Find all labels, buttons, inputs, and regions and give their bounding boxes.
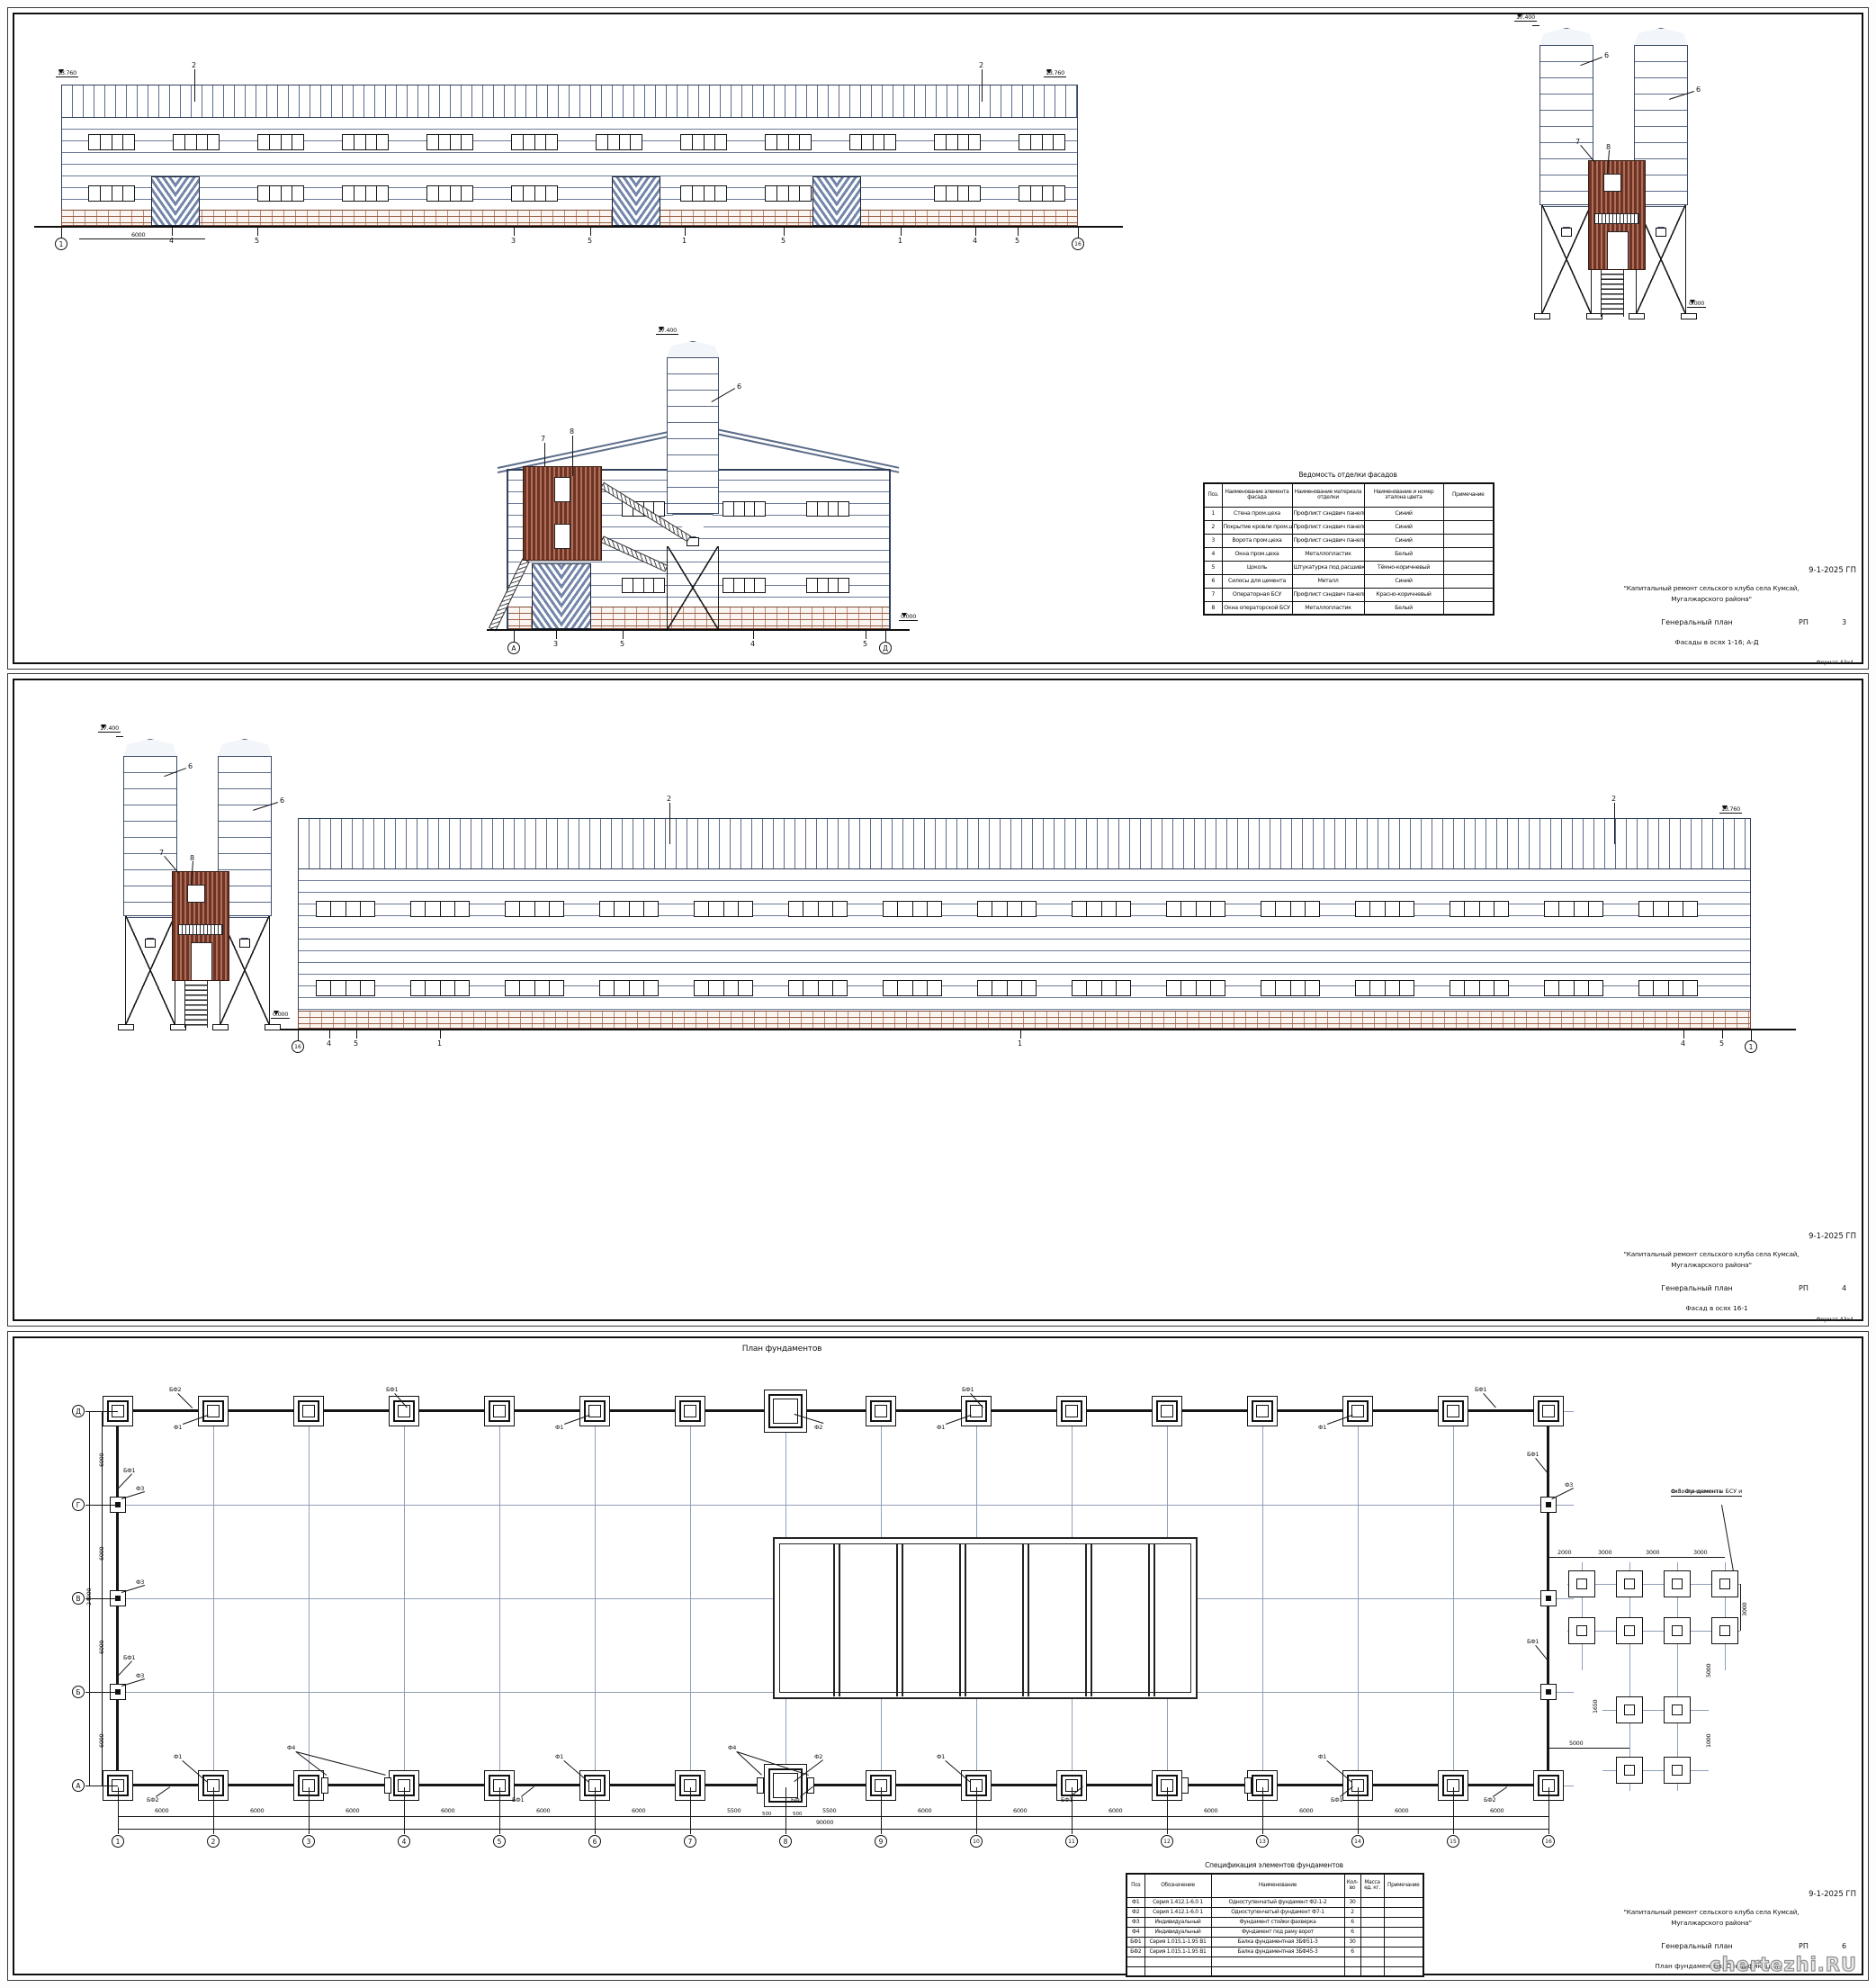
window-pane bbox=[1306, 902, 1319, 916]
table-cell: 6 bbox=[1344, 1927, 1360, 1937]
callout-label: 3000 bbox=[1646, 1549, 1659, 1556]
callout-label: 5 bbox=[863, 640, 867, 648]
window-pane bbox=[623, 579, 633, 592]
cabin-window bbox=[554, 477, 570, 502]
window-pane bbox=[705, 186, 716, 201]
silo-legs-brace bbox=[667, 546, 719, 629]
axis-circle: 7 bbox=[684, 1835, 696, 1848]
window-pane bbox=[101, 186, 112, 201]
dim-label: 6000 bbox=[98, 1726, 105, 1748]
sheet-caption: Фасад в осях 16-1 bbox=[1620, 1304, 1813, 1312]
window-group bbox=[316, 980, 375, 996]
table-cell bbox=[1443, 520, 1494, 534]
line bbox=[440, 1030, 441, 1039]
window-pane bbox=[803, 902, 818, 916]
window-group bbox=[1544, 980, 1603, 996]
window-pane bbox=[884, 981, 898, 995]
window-group bbox=[765, 185, 812, 202]
window-pane bbox=[317, 981, 331, 995]
window-pane bbox=[524, 186, 535, 201]
table-row: Ф3ИндивидуальныйФундамент стойки фахверк… bbox=[1126, 1917, 1423, 1927]
table-cell: 2 bbox=[1344, 1907, 1360, 1917]
window-pane bbox=[789, 186, 801, 201]
leader-line bbox=[1483, 1393, 1496, 1408]
callout-label: Ф1 bbox=[555, 1424, 563, 1431]
window-pane bbox=[1589, 902, 1602, 916]
line bbox=[889, 469, 891, 629]
window-group bbox=[1072, 980, 1131, 996]
roof-parapet bbox=[298, 818, 1751, 869]
table-cell: Профлист сэндвич панели bbox=[1292, 534, 1364, 547]
foundation-bsu-inner bbox=[1624, 1625, 1635, 1636]
window-group bbox=[1450, 980, 1509, 996]
window-pane bbox=[331, 981, 346, 995]
window-pane bbox=[462, 135, 472, 149]
foundation-f1-inner bbox=[493, 1405, 506, 1417]
window-pane bbox=[346, 981, 361, 995]
callout-label: 6000 bbox=[1109, 1807, 1122, 1814]
line bbox=[213, 1787, 214, 1834]
foundation-f1-inner bbox=[1161, 1405, 1173, 1417]
window-pane bbox=[1639, 981, 1654, 995]
gate-leaf-right bbox=[636, 177, 660, 225]
table-cell bbox=[1126, 1957, 1144, 1966]
callout-label: Ф1 bbox=[174, 1753, 182, 1760]
line bbox=[271, 1029, 1796, 1030]
callout-label: 6000 bbox=[131, 231, 145, 238]
window-group bbox=[596, 134, 642, 150]
doc-code: 9-1-2025 ГП bbox=[1809, 566, 1856, 575]
window-pane bbox=[898, 902, 912, 916]
window-pane bbox=[833, 981, 847, 995]
doc-title: Генеральный план bbox=[1633, 1284, 1761, 1292]
leader-line bbox=[121, 1491, 145, 1499]
window-pane bbox=[1197, 981, 1211, 995]
callout-label: 6000 bbox=[632, 1807, 645, 1814]
line bbox=[1085, 1543, 1087, 1696]
silos-group: 17.40066780.000 bbox=[1514, 12, 1717, 328]
window-pane bbox=[1480, 902, 1495, 916]
line bbox=[623, 631, 624, 639]
window-pane bbox=[377, 186, 388, 201]
foundation-f1 bbox=[1533, 1396, 1564, 1426]
window-pane bbox=[197, 135, 209, 149]
window-group bbox=[257, 185, 304, 202]
table-cell: Синий bbox=[1364, 534, 1443, 547]
line bbox=[118, 1409, 1550, 1412]
table-cell bbox=[1144, 1966, 1211, 1976]
table-cell: Одноступенчатый фундамент Ф2-1-2 bbox=[1211, 1897, 1344, 1907]
leader-line bbox=[118, 1660, 132, 1676]
line bbox=[1358, 1787, 1359, 1834]
window-pane bbox=[512, 135, 524, 149]
table-cell: 6 bbox=[1204, 574, 1222, 588]
table-cell bbox=[1360, 1966, 1384, 1976]
window-pane bbox=[343, 135, 355, 149]
window-pane bbox=[1495, 902, 1508, 916]
window-group bbox=[1019, 134, 1065, 150]
window-group bbox=[977, 980, 1037, 996]
table-cell: Металлопластик bbox=[1292, 601, 1364, 615]
window-pane bbox=[1087, 902, 1101, 916]
window-pane bbox=[361, 981, 374, 995]
window-pane bbox=[777, 135, 789, 149]
callout-label: БФ1 bbox=[962, 1386, 974, 1393]
window-pane bbox=[355, 186, 366, 201]
window-pane bbox=[89, 135, 101, 149]
window-pane bbox=[520, 981, 534, 995]
foundation-f4 bbox=[757, 1777, 764, 1794]
callout-label: 500 bbox=[762, 1812, 772, 1817]
window-pane bbox=[884, 902, 898, 916]
callout-label: Ф4 bbox=[287, 1744, 295, 1751]
window-group bbox=[680, 185, 727, 202]
line bbox=[1018, 228, 1019, 236]
window-pane bbox=[292, 135, 303, 149]
callout-label: Ф1 bbox=[937, 1753, 945, 1760]
window-pane bbox=[928, 981, 941, 995]
line bbox=[881, 1787, 882, 1834]
table-header-cell: Примечание bbox=[1384, 1874, 1423, 1897]
window-pane bbox=[270, 186, 282, 201]
foundation-f1-inner bbox=[684, 1405, 696, 1417]
title-block-sheet2: 9-1-2025 ГП "Капитальный ремонт сельског… bbox=[1538, 1225, 1863, 1326]
gate bbox=[532, 563, 591, 629]
window-pane bbox=[1022, 981, 1036, 995]
window-pane bbox=[462, 186, 472, 201]
window-group bbox=[88, 134, 135, 150]
line bbox=[213, 1399, 214, 1822]
cabin-window bbox=[1603, 174, 1621, 192]
table-cell: Металлопластик bbox=[1292, 547, 1364, 561]
window-group bbox=[410, 980, 470, 996]
window-pane bbox=[681, 186, 693, 201]
project-name-line2: Мугалжарского района" bbox=[1671, 1261, 1751, 1269]
window-pane bbox=[615, 981, 629, 995]
window-group bbox=[1261, 980, 1320, 996]
window-pane bbox=[1102, 981, 1117, 995]
window-group bbox=[788, 980, 848, 996]
foundation-f1-inner bbox=[1542, 1405, 1555, 1417]
callout-label: БФ2 bbox=[1484, 1796, 1495, 1804]
foundation-bsu bbox=[1616, 1617, 1643, 1644]
line bbox=[784, 228, 785, 236]
elevation-arrow-icon bbox=[902, 613, 907, 617]
window-pane bbox=[1575, 902, 1589, 916]
window-pane bbox=[455, 902, 469, 916]
window-pane bbox=[1197, 902, 1211, 916]
window-pane bbox=[829, 502, 839, 516]
line bbox=[1167, 1787, 1168, 1834]
silo-legs-brace bbox=[125, 916, 175, 1024]
window-pane bbox=[789, 981, 803, 995]
window-pane bbox=[913, 981, 928, 995]
callout-label: 2 bbox=[979, 61, 983, 69]
axis-circle: 14 bbox=[1351, 1835, 1364, 1848]
window-pane bbox=[807, 502, 818, 516]
window-pane bbox=[451, 186, 462, 201]
window-pane bbox=[1683, 902, 1697, 916]
axis-circle: 11 bbox=[1065, 1835, 1078, 1848]
window-pane bbox=[258, 186, 270, 201]
window-pane bbox=[874, 135, 885, 149]
callout-label: 5000 bbox=[1569, 1740, 1583, 1747]
window-group bbox=[511, 134, 558, 150]
foundation-f1-inner bbox=[302, 1405, 315, 1417]
project-name-line1: "Капитальный ремонт сельского клуба села… bbox=[1624, 1908, 1800, 1916]
window-pane bbox=[693, 135, 705, 149]
silo-body bbox=[123, 756, 177, 916]
silo-foot bbox=[118, 1024, 134, 1030]
foundation-bsu-inner bbox=[1719, 1625, 1730, 1636]
callout-label: 2 bbox=[667, 795, 671, 803]
window-pane bbox=[819, 902, 833, 916]
window-group bbox=[723, 501, 766, 517]
foundation-bsu-inner bbox=[1672, 1705, 1683, 1715]
callout-label: 6 bbox=[280, 796, 284, 805]
window-pane bbox=[723, 579, 734, 592]
foundation-bsu-inner bbox=[1672, 1625, 1683, 1636]
line bbox=[885, 631, 886, 642]
table-cell: Ф2 bbox=[1126, 1907, 1144, 1917]
line bbox=[85, 1786, 118, 1786]
window-pane bbox=[1211, 902, 1225, 916]
window-group bbox=[723, 578, 766, 593]
window-pane bbox=[1370, 902, 1385, 916]
window-pane bbox=[1031, 135, 1043, 149]
doc-code: 9-1-2025 ГП bbox=[1809, 1890, 1856, 1899]
line bbox=[34, 226, 1123, 228]
line bbox=[1028, 1543, 1029, 1696]
gate-leaf-left bbox=[813, 177, 837, 225]
window-group bbox=[788, 901, 848, 917]
line bbox=[118, 1784, 1550, 1786]
window-pane bbox=[608, 135, 620, 149]
elevation-arrow-icon bbox=[1690, 300, 1695, 304]
silo-legs-brace bbox=[1541, 205, 1592, 313]
table-row: БФ1Серия 1.015.1-1.95 В1Балка фундаментн… bbox=[1126, 1937, 1423, 1947]
table-row: 8Окна операторской БСУМеталлопластикБелы… bbox=[1204, 601, 1494, 615]
operator-cabin bbox=[523, 466, 602, 561]
foundation-f3-core bbox=[1546, 1502, 1551, 1507]
window-pane bbox=[928, 902, 941, 916]
cabin-door bbox=[1607, 231, 1629, 269]
table-cell bbox=[1360, 1947, 1384, 1957]
window-pane bbox=[600, 902, 615, 916]
table-cell: 7 bbox=[1204, 588, 1222, 601]
window-pane bbox=[1117, 981, 1130, 995]
cabin-door bbox=[191, 942, 212, 980]
window-pane bbox=[819, 981, 833, 995]
table-cell bbox=[1443, 588, 1494, 601]
window-pane bbox=[681, 135, 693, 149]
foundation-bsu bbox=[1616, 1757, 1643, 1784]
leader-line bbox=[121, 1585, 145, 1593]
line bbox=[901, 228, 902, 236]
stage-label: РП bbox=[1799, 1942, 1809, 1950]
window-pane bbox=[346, 902, 361, 916]
window-group bbox=[1166, 901, 1225, 917]
line bbox=[257, 228, 258, 236]
operator-cabin bbox=[1588, 160, 1646, 270]
foundation-f1-inner bbox=[588, 1405, 601, 1417]
title-block-sheet1: 9-1-2025 ГП "Капитальный ремонт сельског… bbox=[1538, 559, 1863, 660]
window-pane bbox=[1639, 902, 1654, 916]
window-pane bbox=[439, 135, 451, 149]
callout-label: 6000 bbox=[346, 1807, 359, 1814]
leader-line bbox=[1532, 25, 1539, 26]
window-pane bbox=[800, 186, 811, 201]
callout-label: 6000 bbox=[918, 1807, 931, 1814]
window-pane bbox=[1589, 981, 1602, 995]
window-pane bbox=[862, 135, 874, 149]
window-pane bbox=[1043, 135, 1055, 149]
doc-title: Генеральный план bbox=[1633, 1942, 1761, 1950]
cabin-window bbox=[187, 885, 205, 903]
line bbox=[669, 803, 670, 844]
format-note: Формат А3х4 bbox=[1816, 660, 1854, 666]
callout-label: 5500 bbox=[822, 1807, 836, 1814]
line bbox=[959, 1543, 961, 1696]
project-name-line1: "Капитальный ремонт сельского клуба села… bbox=[1624, 584, 1800, 592]
window-pane bbox=[978, 981, 992, 995]
table-cell bbox=[1384, 1897, 1423, 1907]
window-group bbox=[410, 901, 470, 917]
foundation-bsu-inner bbox=[1672, 1765, 1683, 1776]
window-pane bbox=[451, 135, 462, 149]
window-pane bbox=[947, 186, 958, 201]
axis-circle: 9 bbox=[875, 1835, 887, 1848]
table-cell: Индивидуальный bbox=[1144, 1917, 1211, 1927]
window-pane bbox=[123, 135, 134, 149]
window-pane bbox=[1261, 981, 1276, 995]
callout-label: 6000 bbox=[1395, 1807, 1408, 1814]
foundation-f3-core bbox=[1546, 1596, 1551, 1601]
window-pane bbox=[89, 186, 101, 201]
table-cell bbox=[1384, 1917, 1423, 1927]
window-pane bbox=[724, 902, 739, 916]
window-pane bbox=[969, 186, 980, 201]
window-pane bbox=[512, 186, 524, 201]
table-cell: Синий bbox=[1364, 520, 1443, 534]
line bbox=[118, 1816, 1548, 1817]
table-header-cell: Наименование и номер эталона цвета bbox=[1364, 483, 1443, 507]
table-cell: 8 bbox=[1204, 601, 1222, 615]
dim-label: 6000 bbox=[98, 1445, 105, 1467]
window-group bbox=[1019, 185, 1065, 202]
table-cell: 6 bbox=[1344, 1947, 1360, 1957]
window-pane bbox=[535, 135, 547, 149]
window-pane bbox=[1654, 981, 1668, 995]
table-row: 3Ворота пром.цехаПрофлист сэндвич панели… bbox=[1204, 534, 1494, 547]
table-header-cell: Масса ед. кг. bbox=[1360, 1874, 1384, 1897]
window-pane bbox=[535, 981, 550, 995]
stage-label: РП bbox=[1799, 1284, 1809, 1292]
window-pane bbox=[958, 186, 970, 201]
window-pane bbox=[426, 981, 440, 995]
callout-label: 1 bbox=[898, 237, 902, 245]
foundation-f1-inner bbox=[875, 1405, 887, 1417]
line bbox=[499, 1787, 500, 1834]
line bbox=[85, 1411, 118, 1412]
callout-label: Ф1 bbox=[1318, 1424, 1326, 1431]
leader-line bbox=[1493, 1786, 1508, 1797]
window-group bbox=[599, 980, 659, 996]
window-pane bbox=[317, 902, 331, 916]
table-cell bbox=[1360, 1907, 1384, 1917]
foundation-f1 bbox=[389, 1396, 419, 1426]
window-pane bbox=[935, 186, 947, 201]
window-pane bbox=[355, 135, 366, 149]
axis-circle: 12 bbox=[1161, 1835, 1173, 1848]
callout-label: 7 bbox=[159, 849, 164, 857]
foundation-bsu-inner bbox=[1576, 1579, 1587, 1589]
elevation-arrow-icon bbox=[1046, 69, 1052, 74]
foundation-f1-inner bbox=[1065, 1405, 1078, 1417]
window-pane bbox=[1073, 902, 1087, 916]
window-pane bbox=[441, 902, 455, 916]
window-group bbox=[342, 185, 389, 202]
window-group bbox=[806, 578, 849, 593]
window-group bbox=[883, 901, 942, 917]
table-cell: 30 bbox=[1344, 1897, 1360, 1907]
line bbox=[404, 1399, 405, 1822]
window-pane bbox=[734, 579, 745, 592]
foundation-f1-inner bbox=[1256, 1405, 1269, 1417]
table-row: 1Стена пром.цехаПрофлист сэндвич панелиС… bbox=[1204, 507, 1494, 520]
line bbox=[1148, 1543, 1150, 1696]
window-pane bbox=[1495, 981, 1508, 995]
window-group bbox=[1261, 901, 1320, 917]
callout-label: 6 bbox=[1604, 51, 1609, 59]
window-pane bbox=[366, 186, 378, 201]
foundation-bsu-inner bbox=[1624, 1765, 1635, 1776]
window-pane bbox=[1019, 186, 1031, 201]
window-pane bbox=[992, 981, 1007, 995]
table-row: Ф4ИндивидуальныйФундамент под раму ворот… bbox=[1126, 1927, 1423, 1937]
project-name-line2: Мугалжарского района" bbox=[1671, 595, 1751, 603]
callout-label: 6000 bbox=[536, 1807, 550, 1814]
callout-label: 3 bbox=[511, 237, 516, 245]
window-pane bbox=[1400, 981, 1414, 995]
foundation-bsu bbox=[1568, 1570, 1595, 1597]
axis-circle: 8 bbox=[779, 1835, 792, 1848]
table-cell bbox=[1443, 507, 1494, 520]
line bbox=[1262, 1787, 1263, 1834]
gate-leaf-left bbox=[533, 564, 561, 628]
leader-line bbox=[1721, 1505, 1734, 1571]
sheet-number: 3 bbox=[1842, 618, 1846, 626]
table-cell: Серия 1.412.1-6.0 1 bbox=[1144, 1897, 1211, 1907]
axis-circle: Б bbox=[72, 1686, 85, 1698]
table-cell: Профлист сэндвич панели bbox=[1292, 520, 1364, 534]
foundation-f1 bbox=[1438, 1396, 1468, 1426]
line bbox=[118, 1787, 119, 1834]
foundation-bsu bbox=[1711, 1617, 1738, 1644]
foundation-f1-inner bbox=[398, 1405, 410, 1417]
window-pane bbox=[695, 902, 709, 916]
line bbox=[1614, 803, 1615, 844]
callout-label: 6000 bbox=[1299, 1807, 1313, 1814]
window-group bbox=[806, 501, 849, 517]
callout-label: 1 bbox=[682, 237, 687, 245]
dim-label: 1650 bbox=[1592, 1692, 1599, 1714]
gate bbox=[612, 176, 660, 226]
gate bbox=[151, 176, 200, 226]
window-pane bbox=[185, 135, 197, 149]
callout-label: 5 bbox=[620, 640, 624, 648]
elevation-arrow-icon bbox=[274, 1011, 279, 1015]
